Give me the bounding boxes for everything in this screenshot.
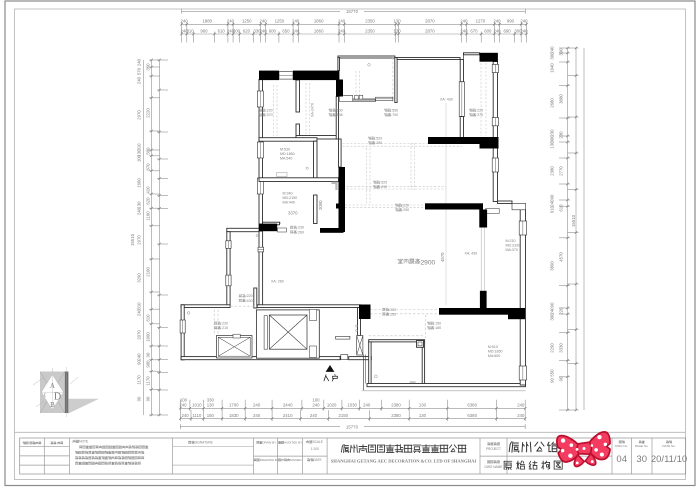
svg-text:240: 240 — [182, 413, 190, 418]
svg-text:AUDITED BY: AUDITED BY — [284, 441, 302, 445]
svg-text:240: 240 — [310, 413, 318, 418]
svg-text:MD:1860: MD:1860 — [280, 152, 295, 156]
svg-text:XA: 260: XA: 260 — [271, 280, 284, 284]
svg-text:3330: 3330 — [559, 343, 564, 353]
svg-text:240: 240 — [253, 403, 261, 408]
svg-text:1700: 1700 — [229, 403, 239, 408]
svg-text:15770: 15770 — [346, 425, 359, 430]
svg-text:D: D — [54, 392, 61, 403]
svg-text:150: 150 — [207, 413, 215, 418]
svg-text:SIGNATURE: SIGNATURE — [194, 441, 212, 445]
svg-text:600: 600 — [484, 28, 492, 33]
svg-text:1:100: 1:100 — [311, 447, 319, 451]
svg-text:300: 300 — [233, 28, 241, 33]
svg-text:610: 610 — [550, 205, 555, 213]
svg-text:240: 240 — [338, 28, 346, 33]
svg-text:300: 300 — [550, 313, 555, 321]
svg-text:2770: 2770 — [559, 166, 564, 176]
svg-text:1860: 1860 — [314, 28, 324, 33]
svg-text:130: 130 — [550, 141, 555, 149]
svg-text:6380: 6380 — [467, 413, 477, 418]
svg-text:2160: 2160 — [146, 267, 151, 277]
svg-text:240: 240 — [460, 19, 468, 24]
svg-text::290: :290 — [402, 208, 409, 212]
svg-text:420: 420 — [146, 186, 151, 194]
svg-text::230: :230 — [297, 226, 304, 230]
svg-text:610: 610 — [559, 204, 564, 212]
svg-text:2410: 2410 — [283, 413, 293, 418]
svg-text:240: 240 — [137, 353, 142, 361]
svg-text:SCALE: SCALE — [312, 440, 322, 444]
svg-text:130: 130 — [207, 403, 215, 408]
svg-text:2970: 2970 — [137, 110, 142, 120]
svg-text:240: 240 — [137, 76, 142, 84]
svg-text:MD:2150: MD:2150 — [283, 196, 298, 200]
svg-text:2380: 2380 — [391, 413, 401, 418]
svg-text:A: A — [50, 382, 55, 390]
svg-text:30: 30 — [636, 454, 647, 465]
svg-text:DWG No.: DWG No. — [615, 444, 628, 448]
svg-text::370: :370 — [266, 113, 273, 117]
svg-text:M:210: M:210 — [506, 239, 516, 243]
svg-text::550: :550 — [391, 109, 398, 113]
svg-text:2680: 2680 — [550, 98, 555, 108]
svg-text:90: 90 — [137, 396, 142, 401]
svg-text:240: 240 — [137, 308, 142, 316]
svg-text:2380: 2380 — [550, 166, 555, 176]
svg-text:130: 130 — [394, 19, 402, 24]
svg-text:4570: 4570 — [559, 252, 564, 262]
svg-text::220: :220 — [246, 294, 253, 298]
svg-text:240: 240 — [179, 403, 187, 408]
svg-text::838: :838 — [336, 113, 343, 117]
svg-text:2220: 2220 — [146, 108, 151, 118]
svg-text:1660: 1660 — [137, 178, 142, 188]
svg-text:610: 610 — [146, 314, 151, 322]
svg-text:90: 90 — [550, 378, 555, 383]
svg-text:300: 300 — [559, 48, 564, 56]
svg-text:4570: 4570 — [440, 252, 445, 262]
svg-text::200: :200 — [336, 109, 343, 113]
svg-text::370: :370 — [476, 113, 483, 117]
svg-text:2290: 2290 — [550, 343, 555, 353]
svg-text:3290: 3290 — [137, 273, 142, 283]
svg-text:1860: 1860 — [314, 19, 324, 24]
svg-text:1270: 1270 — [476, 19, 486, 24]
svg-text:1010: 1010 — [192, 403, 202, 408]
svg-text:M:510: M:510 — [488, 345, 498, 349]
svg-text:870: 870 — [146, 163, 151, 171]
svg-text:240: 240 — [493, 19, 501, 24]
svg-text:1020: 1020 — [327, 403, 337, 408]
svg-text:2870: 2870 — [425, 19, 435, 24]
svg-text:2150: 2150 — [339, 413, 349, 418]
svg-text:90: 90 — [559, 376, 564, 381]
svg-text:15510: 15510 — [571, 214, 576, 227]
svg-text:2070: 2070 — [137, 330, 142, 340]
svg-text:DWG NAME: DWG NAME — [485, 465, 503, 469]
svg-text:670: 670 — [470, 28, 478, 33]
svg-text:1170: 1170 — [146, 376, 151, 386]
svg-text:690: 690 — [504, 28, 512, 33]
svg-text:240: 240 — [550, 199, 555, 207]
svg-text:1250: 1250 — [242, 19, 252, 24]
svg-text:900: 900 — [146, 360, 151, 368]
svg-text:990: 990 — [507, 19, 515, 24]
svg-text:DATE No.: DATE No. — [662, 444, 675, 448]
svg-text:240: 240 — [520, 19, 528, 24]
svg-text:240: 240 — [363, 403, 371, 408]
svg-text:130: 130 — [419, 413, 427, 418]
svg-text:MA:540: MA:540 — [280, 157, 292, 161]
svg-text:M:530: M:530 — [280, 148, 290, 152]
svg-text:550: 550 — [550, 369, 555, 377]
svg-text:4000: 4000 — [410, 380, 417, 384]
svg-text:650: 650 — [282, 28, 290, 33]
svg-text:620: 620 — [146, 197, 151, 205]
svg-text:240: 240 — [517, 403, 525, 408]
svg-text:620: 620 — [243, 28, 251, 33]
svg-text:240: 240 — [227, 19, 235, 24]
svg-text:240: 240 — [520, 28, 528, 33]
svg-text::260: :260 — [297, 230, 304, 234]
svg-text:100: 100 — [137, 154, 142, 162]
svg-text:240: 240 — [260, 19, 268, 24]
svg-text:90: 90 — [550, 302, 555, 307]
svg-text::250: :250 — [389, 312, 396, 316]
svg-text:500: 500 — [146, 147, 151, 155]
svg-text:240: 240 — [181, 19, 189, 24]
svg-text:100: 100 — [180, 398, 188, 403]
svg-text:SHANGHAI GETANG AEC DECORAT: SHANGHAI GETANG AEC DECORATION &CO. LTD … — [331, 459, 477, 464]
svg-text::220: :220 — [266, 109, 273, 113]
svg-text:240: 240 — [338, 19, 346, 24]
svg-text:310: 310 — [137, 302, 142, 310]
svg-text:240: 240 — [292, 19, 300, 24]
svg-text::180: :180 — [434, 326, 441, 330]
svg-text:300: 300 — [550, 52, 555, 60]
svg-text:MA:440: MA:440 — [283, 201, 295, 205]
svg-text:570: 570 — [137, 67, 142, 75]
svg-text:XA: 430: XA: 430 — [465, 252, 478, 256]
svg-text:1170: 1170 — [137, 375, 142, 385]
svg-text:220: 220 — [559, 307, 564, 315]
svg-text:2900: 2900 — [421, 260, 436, 267]
svg-text:2350: 2350 — [365, 19, 375, 24]
svg-text:130: 130 — [394, 28, 402, 33]
svg-text::520: :520 — [375, 137, 382, 141]
svg-text::290: :290 — [380, 185, 387, 189]
svg-text:DRAW BY: DRAW BY — [262, 441, 276, 445]
svg-text:2970: 2970 — [137, 235, 142, 245]
svg-text:2870: 2870 — [425, 28, 435, 33]
svg-text:1880: 1880 — [203, 19, 213, 24]
svg-text:240: 240 — [260, 28, 268, 33]
svg-text::520: :520 — [380, 181, 387, 185]
svg-text:330: 330 — [207, 398, 215, 403]
svg-text:1030: 1030 — [347, 403, 357, 408]
svg-text:1160: 1160 — [146, 211, 151, 221]
svg-text::210: :210 — [221, 326, 228, 330]
svg-text::700: :700 — [391, 113, 398, 117]
svg-text:90: 90 — [146, 352, 151, 357]
svg-text:DRAWING BY: DRAWING BY — [260, 458, 279, 462]
svg-text:DATE: DATE — [313, 458, 321, 462]
svg-text:3370: 3370 — [288, 211, 298, 216]
svg-text:XA: 430: XA: 430 — [440, 98, 453, 102]
svg-text:2090: 2090 — [318, 200, 323, 210]
svg-text:XA-2470: XA-2470 — [311, 103, 315, 117]
svg-text:240: 240 — [517, 413, 525, 418]
svg-text:240: 240 — [493, 28, 501, 33]
svg-text:130: 130 — [419, 403, 427, 408]
svg-text:M:340: M:340 — [283, 192, 293, 196]
svg-text:350: 350 — [146, 63, 151, 71]
svg-text:1250: 1250 — [275, 19, 285, 24]
svg-text:3890: 3890 — [550, 261, 555, 271]
svg-text:2350: 2350 — [365, 28, 375, 33]
svg-text:c: c — [44, 393, 47, 399]
svg-text:230: 230 — [559, 131, 564, 139]
svg-text:MD:2330: MD:2330 — [506, 244, 521, 248]
svg-text:310: 310 — [187, 28, 195, 33]
svg-text:20/11/10: 20/11/10 — [651, 454, 687, 465]
svg-text:960: 960 — [200, 28, 208, 33]
svg-text::220: :220 — [402, 204, 409, 208]
svg-text:MA:370: MA:370 — [506, 248, 518, 252]
svg-text:15510: 15510 — [130, 233, 135, 246]
svg-text::220: :220 — [389, 308, 396, 312]
svg-text:MD:1850: MD:1850 — [488, 350, 503, 354]
svg-text:15770: 15770 — [346, 9, 359, 14]
svg-text:240: 240 — [292, 28, 300, 33]
svg-text:1110: 1110 — [192, 413, 202, 418]
svg-text::150: :150 — [434, 322, 441, 326]
svg-text:240: 240 — [253, 413, 261, 418]
svg-text:600: 600 — [269, 28, 277, 33]
svg-text:1060: 1060 — [146, 332, 151, 342]
svg-text::290: :290 — [375, 141, 382, 145]
svg-text:MA:600: MA:600 — [488, 354, 500, 358]
svg-text:NOTE: NOTE — [79, 440, 89, 444]
svg-text:90: 90 — [137, 360, 142, 365]
svg-text:3080: 3080 — [559, 94, 564, 104]
svg-text:240: 240 — [312, 403, 320, 408]
svg-text:SIGNED: SIGNED — [290, 458, 302, 462]
svg-text:90: 90 — [550, 194, 555, 199]
svg-text:2380: 2380 — [391, 403, 401, 408]
svg-text:1830: 1830 — [229, 413, 239, 418]
svg-text:6380: 6380 — [467, 403, 477, 408]
svg-text:240: 240 — [137, 207, 142, 215]
svg-text::220: :220 — [221, 322, 228, 326]
svg-text::430: :430 — [246, 299, 253, 303]
svg-text:B: B — [50, 401, 55, 409]
svg-text:04: 04 — [616, 454, 627, 465]
svg-text:130: 130 — [137, 201, 142, 209]
svg-text:100: 100 — [312, 398, 320, 403]
svg-text:1040: 1040 — [550, 63, 555, 73]
svg-text:610: 610 — [218, 28, 226, 33]
svg-text:240: 240 — [137, 58, 142, 66]
svg-text:PROJECT: PROJECT — [486, 447, 501, 451]
svg-text:240: 240 — [460, 28, 468, 33]
svg-text:2440: 2440 — [283, 403, 293, 408]
svg-text:PAGE No.: PAGE No. — [635, 444, 649, 448]
svg-text::220: :220 — [476, 109, 483, 113]
svg-text:90: 90 — [146, 396, 151, 401]
